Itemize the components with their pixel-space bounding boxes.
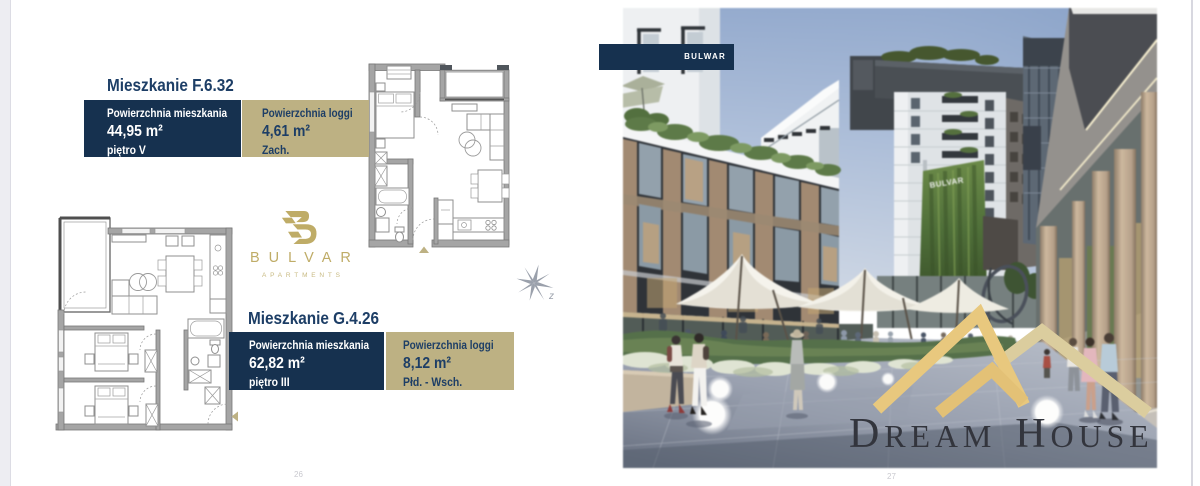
svg-text:z: z — [548, 291, 554, 302]
svg-text:DREAM HOUSE: DREAM HOUSE — [849, 411, 1154, 457]
